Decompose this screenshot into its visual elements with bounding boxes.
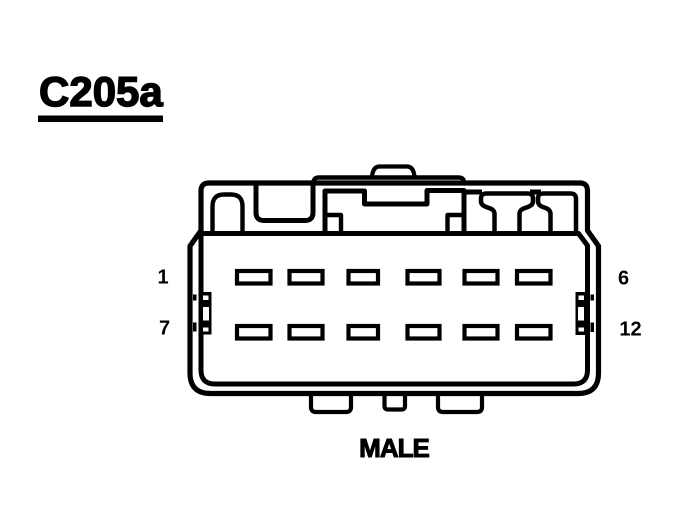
svg-text:1: 1: [157, 267, 168, 289]
svg-text:C205a: C205a: [39, 68, 163, 115]
svg-text:6: 6: [618, 268, 629, 290]
svg-text:12: 12: [619, 319, 641, 341]
svg-text:7: 7: [159, 318, 170, 340]
svg-text:MALE: MALE: [359, 433, 429, 463]
